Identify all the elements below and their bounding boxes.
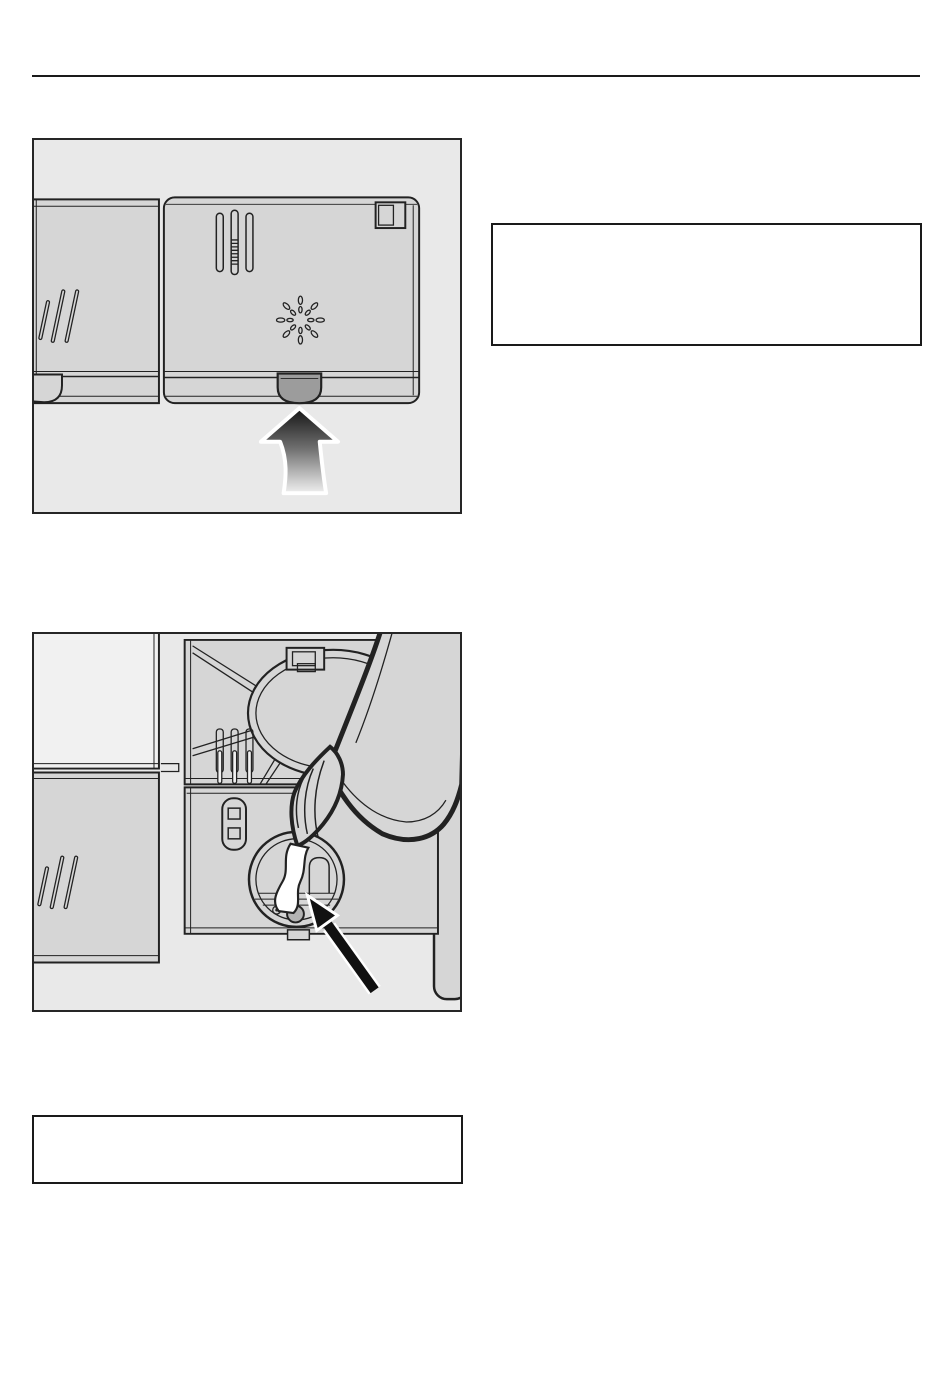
base-tab	[288, 930, 310, 940]
release-tab	[278, 373, 322, 403]
open-lid-back-panel	[34, 634, 179, 772]
up-arrow	[261, 408, 338, 493]
manual-page	[0, 0, 950, 1374]
left-lid-closed	[34, 773, 159, 963]
figure-rinse-aid-filling	[32, 632, 462, 1012]
lid-latch	[376, 202, 406, 228]
left-lid-tab	[34, 374, 62, 402]
left-lid-closed	[34, 199, 159, 403]
note-box-top	[491, 223, 922, 346]
right-lid-closed	[164, 197, 419, 403]
note-box-bottom	[32, 1115, 463, 1184]
detergent-dispenser-closed-drawing	[34, 140, 460, 512]
lid-latch-open	[287, 648, 325, 672]
figure-detergent-dispenser-closed	[32, 138, 462, 514]
header-rule	[32, 75, 920, 77]
rinse-aid-filling-drawing	[34, 634, 460, 1010]
